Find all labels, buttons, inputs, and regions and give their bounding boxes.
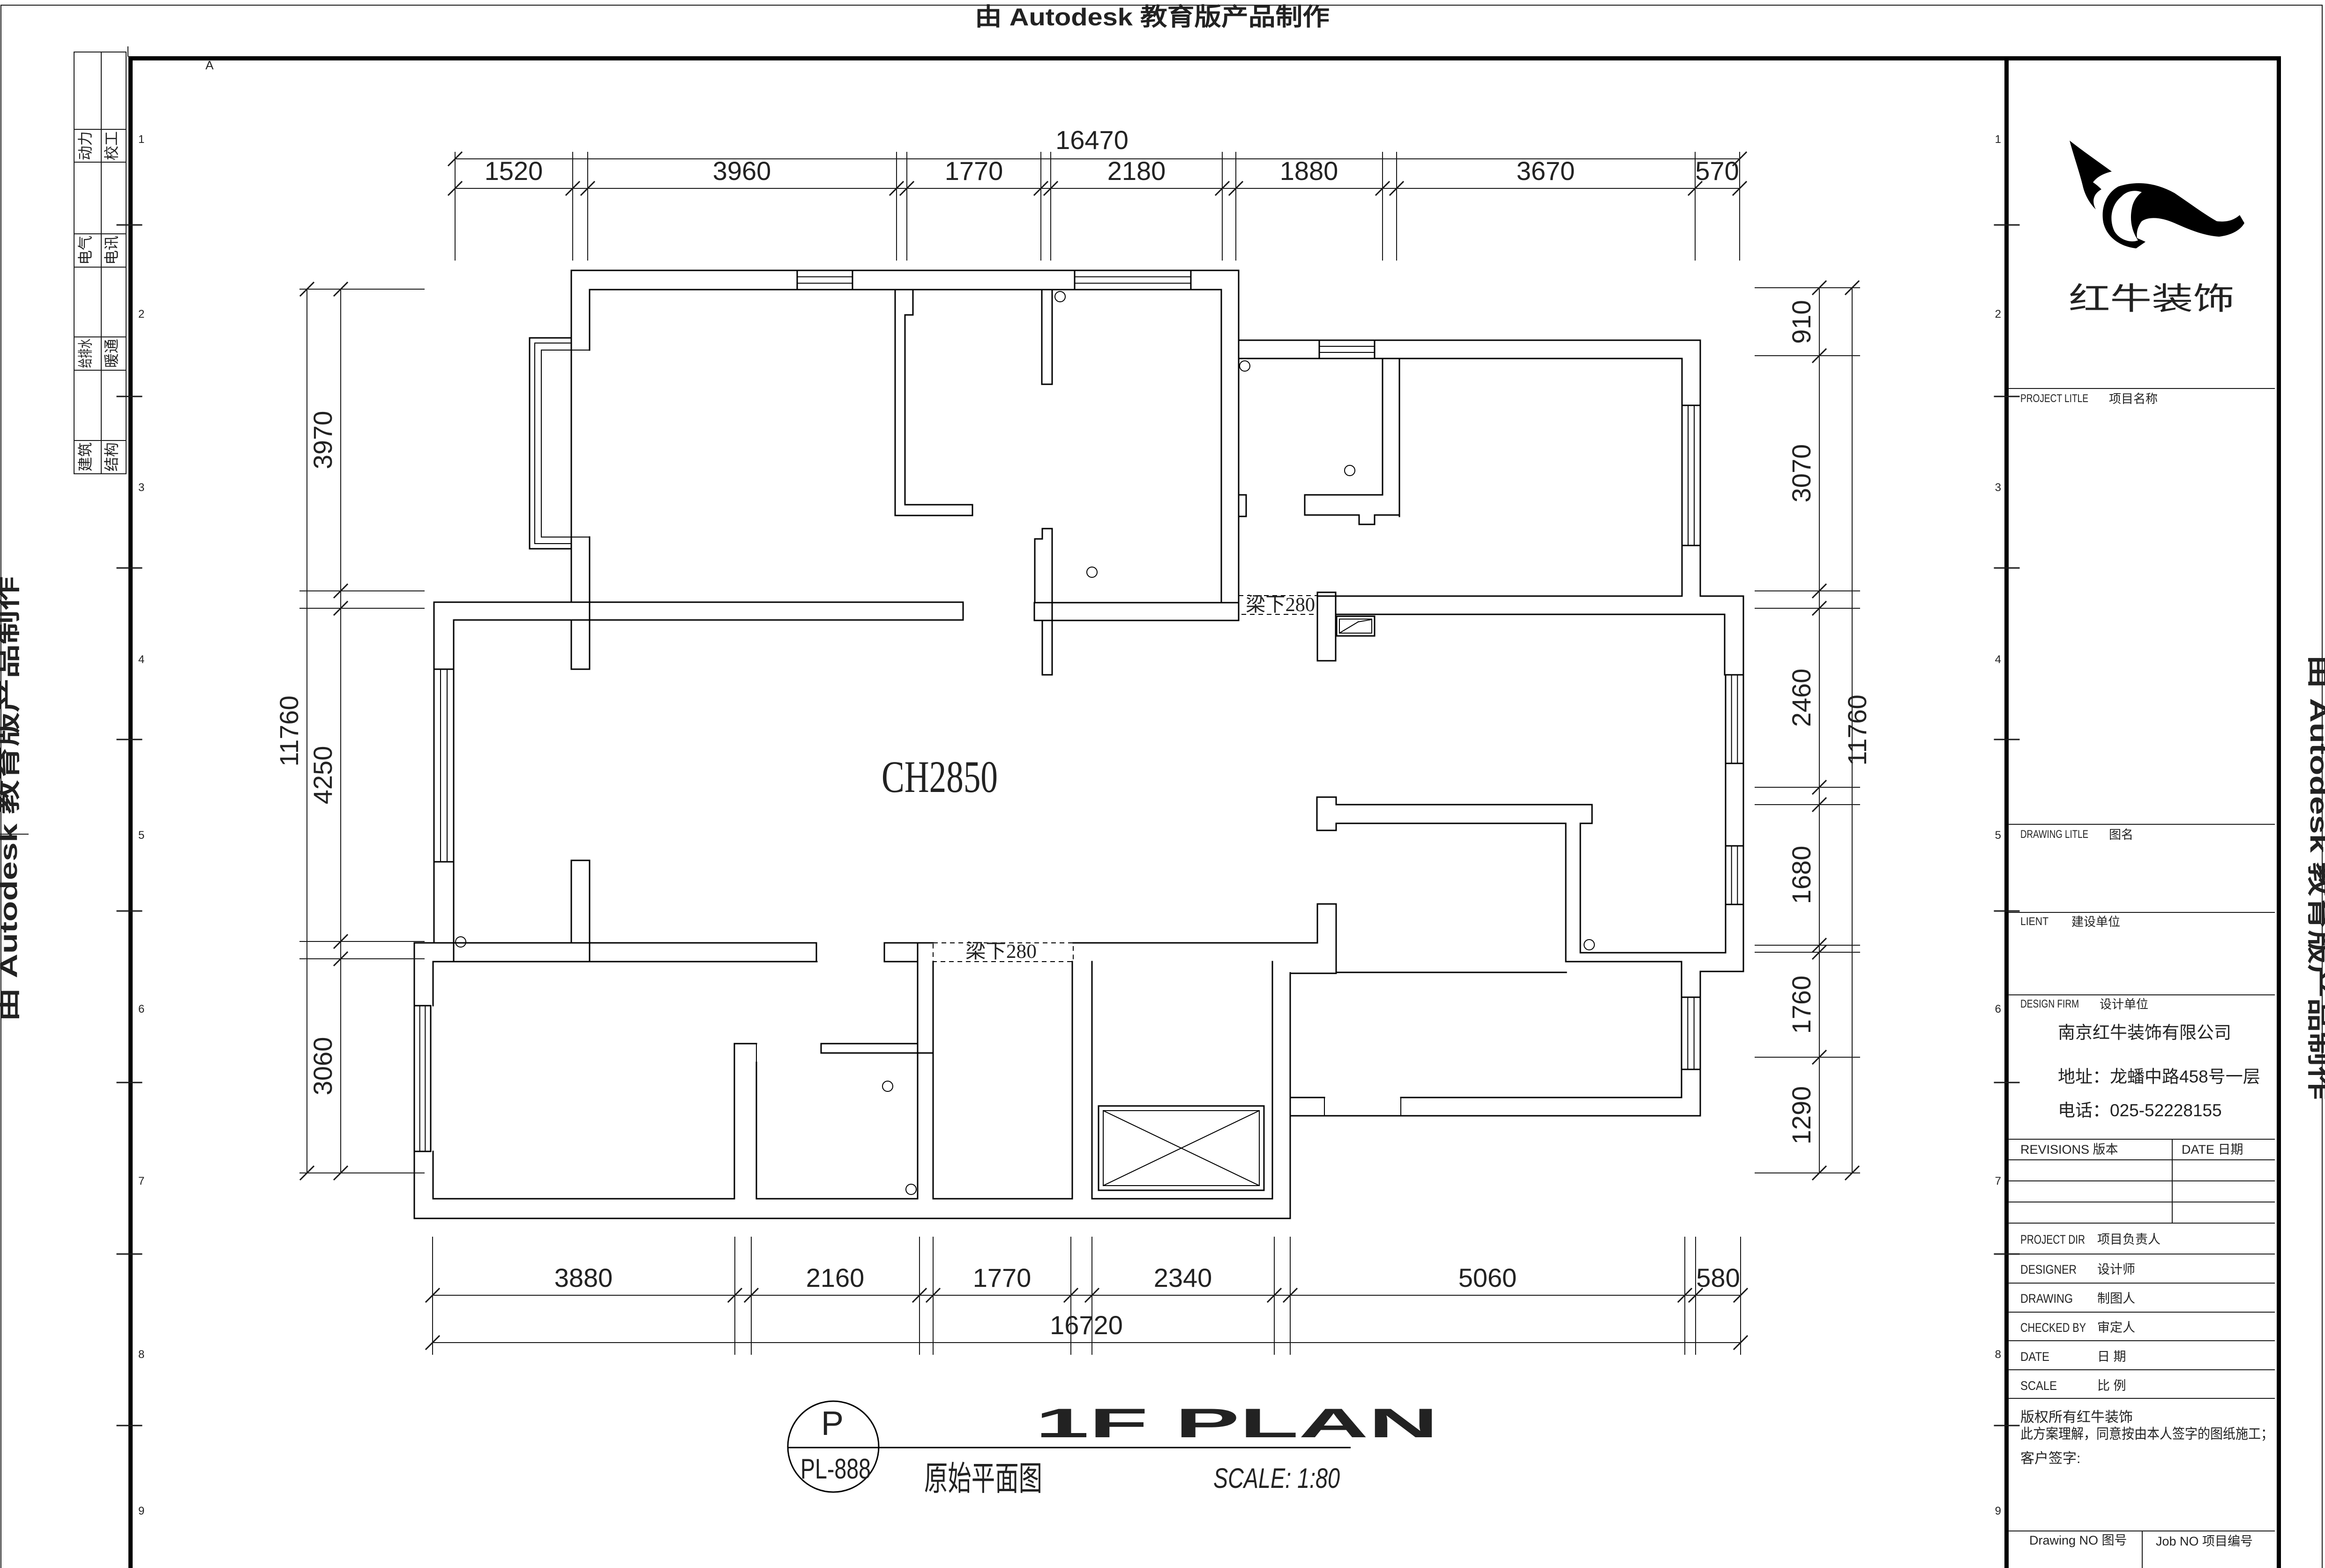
svg-text:比 例: 比 例 — [2097, 1379, 2126, 1393]
svg-text:5: 5 — [138, 829, 144, 842]
svg-text:DRAWING LITLE: DRAWING LITLE — [2020, 828, 2088, 841]
svg-text:项目负责人: 项目负责人 — [2097, 1232, 2161, 1247]
svg-text:PL-888: PL-888 — [800, 1453, 871, 1485]
svg-text:580: 580 — [1696, 1263, 1740, 1292]
svg-text:REVISIONS 版本: REVISIONS 版本 — [2020, 1142, 2118, 1157]
svg-text:动力: 动力 — [77, 131, 94, 160]
svg-text:Drawing NO 图号: Drawing NO 图号 — [2029, 1533, 2127, 1547]
svg-text:1F PLAN: 1F PLAN — [1035, 1400, 1438, 1446]
svg-text:CHECKED BY: CHECKED BY — [2020, 1321, 2086, 1335]
svg-text:建设单位: 建设单位 — [2071, 915, 2120, 929]
svg-text:1770: 1770 — [973, 1263, 1032, 1292]
svg-text:16720: 16720 — [1050, 1310, 1123, 1340]
svg-text:LIENT: LIENT — [2020, 915, 2048, 928]
svg-text:SCALE: SCALE — [2020, 1379, 2057, 1393]
svg-text:1: 1 — [138, 133, 144, 146]
svg-text:570: 570 — [1695, 156, 1739, 186]
svg-text:4: 4 — [1995, 653, 2001, 666]
svg-text:6: 6 — [138, 1003, 144, 1015]
svg-text:9: 9 — [1995, 1505, 2001, 1517]
svg-text:1680: 1680 — [1787, 846, 1816, 904]
svg-text:DESIGNER: DESIGNER — [2020, 1262, 2077, 1277]
svg-text:DATE: DATE — [2020, 1350, 2049, 1364]
svg-text:PROJECT DIR: PROJECT DIR — [2020, 1232, 2085, 1247]
svg-text:3670: 3670 — [1517, 156, 1575, 186]
svg-text:项目名称: 项目名称 — [2109, 392, 2158, 406]
svg-text:4: 4 — [138, 653, 144, 666]
svg-text:1290: 1290 — [1787, 1086, 1816, 1145]
svg-text:4250: 4250 — [308, 746, 337, 805]
svg-text:电气: 电气 — [77, 236, 94, 265]
svg-text:6: 6 — [1995, 1003, 2001, 1015]
svg-text:11760: 11760 — [274, 695, 304, 767]
svg-text:南京红牛装饰有限公司: 南京红牛装饰有限公司 — [2058, 1023, 2231, 1042]
svg-text:2340: 2340 — [1154, 1263, 1212, 1292]
svg-text:梁下280: 梁下280 — [1246, 594, 1315, 616]
svg-text:11760: 11760 — [1842, 694, 1872, 766]
svg-text:DESIGN FIRM: DESIGN FIRM — [2020, 998, 2079, 1010]
svg-text:3070: 3070 — [1787, 444, 1816, 503]
svg-text:图名: 图名 — [2109, 828, 2133, 842]
svg-text:地址：龙蟠中路458号一层: 地址：龙蟠中路458号一层 — [2058, 1067, 2260, 1086]
svg-text:3060: 3060 — [308, 1037, 337, 1096]
svg-text:3: 3 — [138, 481, 144, 494]
svg-text:电话：025-52228155: 电话：025-52228155 — [2058, 1101, 2222, 1120]
svg-text:1770: 1770 — [945, 156, 1003, 186]
svg-text:DRAWING: DRAWING — [2020, 1292, 2073, 1306]
svg-text:3880: 3880 — [554, 1263, 613, 1292]
svg-text:制图人: 制图人 — [2097, 1292, 2135, 1306]
svg-text:设计单位: 设计单位 — [2100, 997, 2148, 1011]
svg-text:2160: 2160 — [806, 1263, 865, 1292]
svg-text:5060: 5060 — [1458, 1263, 1517, 1292]
svg-text:1: 1 — [1995, 133, 2001, 146]
svg-text:设计师: 设计师 — [2097, 1262, 2135, 1277]
svg-text:910: 910 — [1787, 300, 1816, 343]
svg-text:CH2850: CH2850 — [882, 752, 998, 802]
svg-text:审定人: 审定人 — [2097, 1321, 2135, 1335]
svg-text:1520: 1520 — [485, 156, 543, 186]
svg-text:建筑: 建筑 — [77, 442, 94, 471]
svg-text:2460: 2460 — [1787, 669, 1816, 727]
svg-text:2: 2 — [138, 308, 144, 321]
svg-text:PROJECT LITLE: PROJECT LITLE — [2020, 392, 2088, 405]
svg-text:8: 8 — [138, 1348, 144, 1361]
svg-text:3970: 3970 — [308, 411, 337, 470]
svg-text:7: 7 — [138, 1175, 144, 1187]
svg-text:DATE 日期: DATE 日期 — [2182, 1142, 2243, 1157]
svg-text:校工: 校工 — [103, 131, 120, 160]
svg-text:梁下280: 梁下280 — [965, 941, 1037, 963]
svg-text:2180: 2180 — [1107, 156, 1166, 186]
svg-text:9: 9 — [138, 1505, 144, 1517]
svg-text:7: 7 — [1995, 1175, 2001, 1187]
svg-text:客户签字:: 客户签字: — [2020, 1451, 2080, 1466]
svg-text:SCALE: 1:80: SCALE: 1:80 — [1213, 1463, 1340, 1494]
svg-text:5: 5 — [1995, 829, 2001, 842]
svg-text:Job NO 项目编号: Job NO 项目编号 — [2156, 1534, 2253, 1548]
svg-text:2: 2 — [1995, 308, 2001, 321]
svg-text:A: A — [205, 58, 214, 72]
svg-text:P: P — [821, 1405, 844, 1442]
svg-text:8: 8 — [1995, 1348, 2001, 1361]
svg-text:给排水: 给排水 — [77, 339, 94, 368]
svg-text:由 Autodesk 教育版产品制作: 由 Autodesk 教育版产品制作 — [0, 576, 22, 1022]
svg-text:3: 3 — [1995, 481, 2001, 494]
svg-text:1760: 1760 — [1787, 976, 1816, 1034]
svg-text:此方案理解，同意按由本人签字的图纸施工；: 此方案理解，同意按由本人签字的图纸施工； — [2020, 1426, 2273, 1442]
svg-text:3960: 3960 — [713, 156, 771, 186]
svg-text:版权所有红牛装饰: 版权所有红牛装饰 — [2020, 1410, 2133, 1425]
svg-text:电讯: 电讯 — [103, 236, 120, 265]
svg-text:16470: 16470 — [1055, 125, 1129, 155]
svg-text:1880: 1880 — [1280, 156, 1338, 186]
svg-text:由 Autodesk 教育版产品制作: 由 Autodesk 教育版产品制作 — [2305, 655, 2325, 1100]
svg-text:红牛装饰: 红牛装饰 — [2069, 282, 2235, 316]
svg-text:日 期: 日 期 — [2097, 1350, 2126, 1364]
svg-text:原始平面图: 原始平面图 — [924, 1460, 1042, 1498]
svg-text:暖通: 暖通 — [103, 339, 120, 368]
svg-text:结构: 结构 — [103, 442, 120, 471]
svg-text:由 Autodesk 教育版产品制作: 由 Autodesk 教育版产品制作 — [975, 4, 1330, 31]
